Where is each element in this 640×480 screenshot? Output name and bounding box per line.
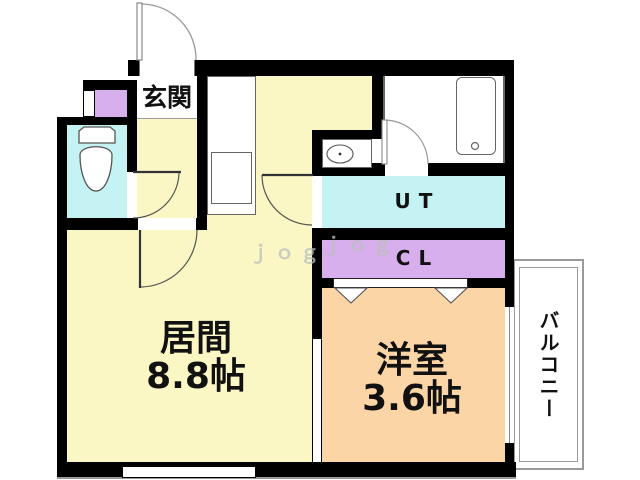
kitchen-floor-south — [207, 215, 312, 230]
western-window-glass-line — [509, 307, 510, 443]
watermark-text-2: ｊｏｇ — [323, 230, 398, 257]
utility-label: UT — [322, 189, 505, 213]
toilet-doorway — [127, 172, 137, 218]
western-room-name: 洋室 — [317, 342, 507, 380]
wall-living-western — [312, 288, 322, 339]
wall-toilet-top — [57, 117, 137, 125]
wall-basin-bottom — [322, 168, 372, 176]
toilet-room-floor — [67, 125, 127, 218]
kitchen-floor-lower — [253, 74, 312, 230]
western-room-label: 洋室 3.6帖 — [317, 342, 507, 418]
washbasin-box — [322, 139, 372, 168]
wall-kitchen-hall — [197, 60, 207, 230]
wall-basin-left — [312, 139, 322, 176]
living-room-label: 居間 8.8帖 — [101, 320, 291, 396]
watermark-text-1: ｊｏｇ — [250, 238, 325, 265]
hall-floor — [137, 118, 197, 230]
floor-plan: 玄関 居間 8.8帖 洋室 3.6帖 UT CL バルコニー ｊｏｇ ｊｏｇ — [0, 0, 640, 480]
living-doorway — [138, 218, 196, 230]
bathtub — [456, 77, 496, 155]
closet-door-track — [333, 278, 468, 288]
living-room-size: 8.8帖 — [101, 358, 291, 396]
genkan-step-line — [137, 118, 197, 119]
entrance-doorway — [139, 60, 195, 76]
wall-kitchen-bath — [372, 60, 383, 139]
meter-niche — [83, 90, 95, 117]
storage-box — [95, 90, 127, 117]
western-room-size: 3.6帖 — [317, 380, 507, 418]
utility-doorway — [312, 176, 322, 228]
wall-left — [57, 117, 67, 477]
kitchen-sink — [211, 152, 252, 204]
bath-doorway — [385, 163, 428, 176]
living-room-name: 居間 — [101, 320, 291, 358]
living-window — [122, 466, 256, 478]
entrance-door — [137, 3, 196, 60]
balcony-label: バルコニー — [534, 310, 563, 445]
wall-basin-top — [312, 130, 372, 139]
genkan-label: 玄関 — [136, 78, 198, 114]
